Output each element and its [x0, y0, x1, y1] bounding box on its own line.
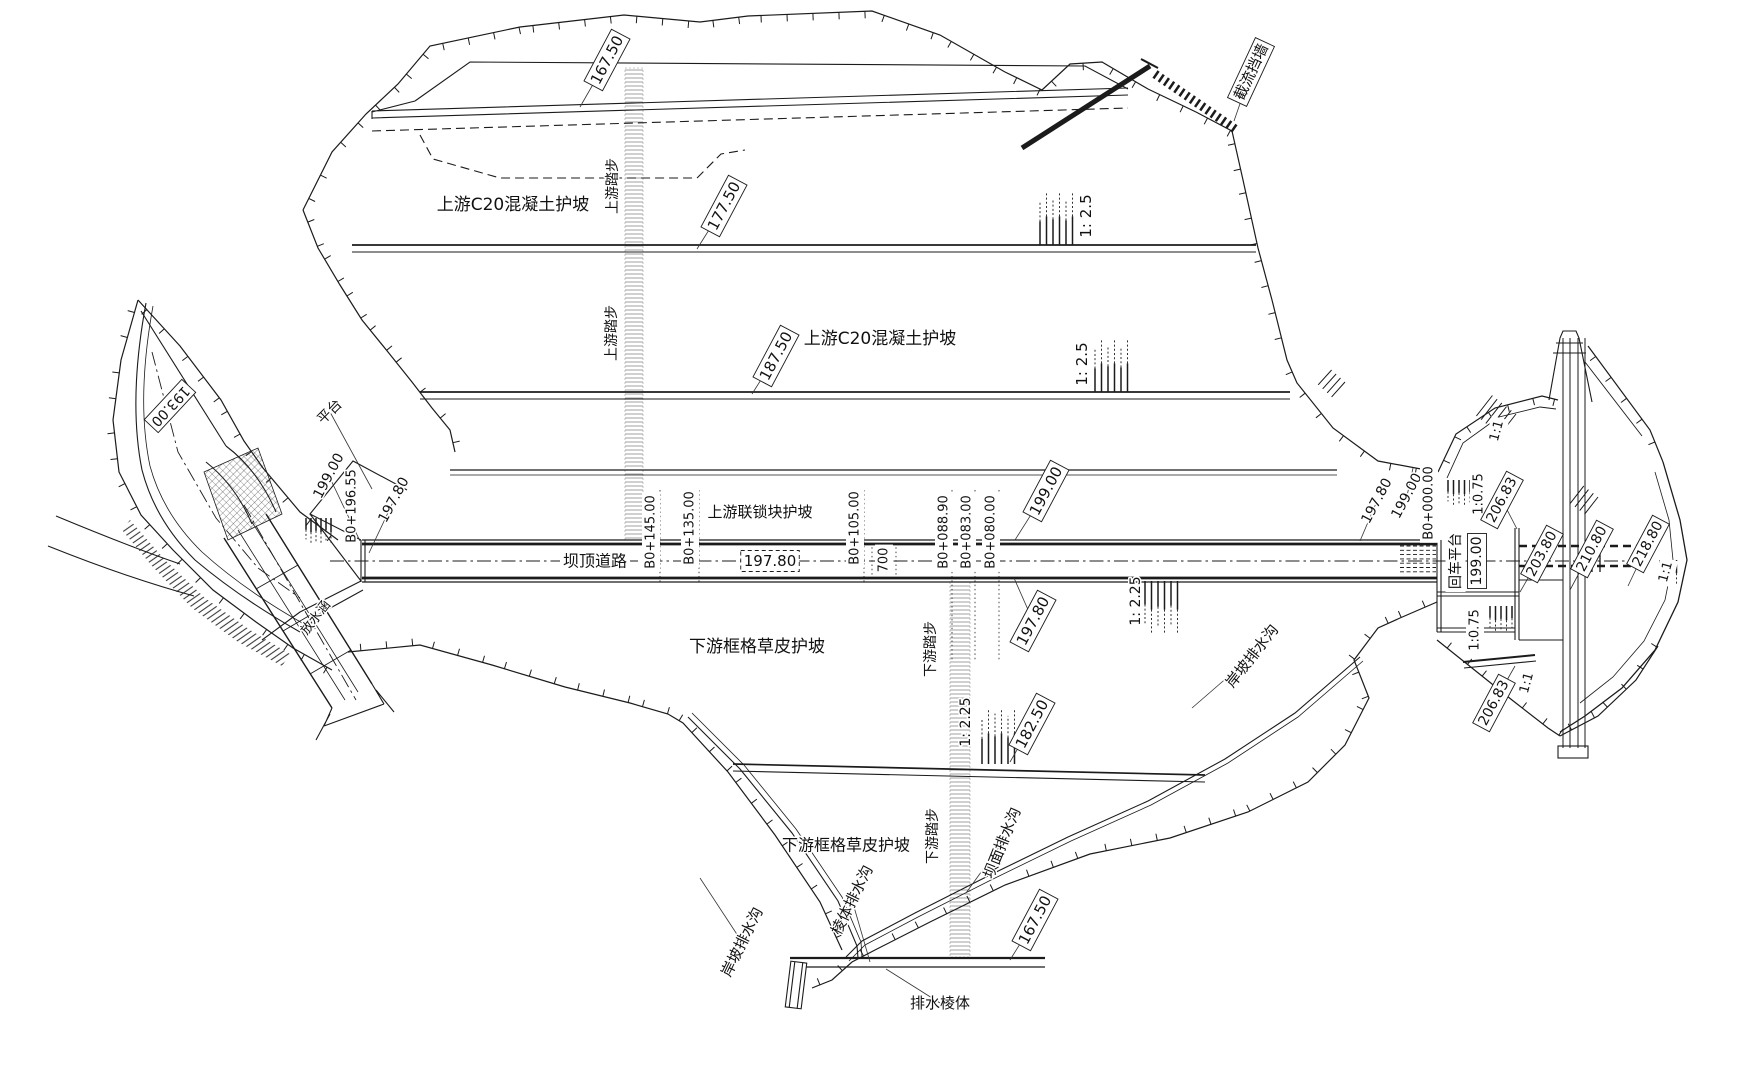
elev-182-50: 182.50	[1009, 693, 1055, 762]
note-turnaround-platform-text: 回车平台	[1447, 533, 1464, 589]
station-b0-105-00: B0+105.00	[846, 488, 864, 568]
note-downstream-grid-slope-b-text: 下游框格草皮护坡	[782, 836, 910, 855]
boundary-bottom-right	[812, 602, 1437, 988]
slope-1-2-5-a: 1: 2.5	[1077, 194, 1095, 237]
note-upstream-c20-slope-a-text: 上游C20混凝土护坡	[437, 195, 590, 215]
tower-conduit	[1563, 338, 1585, 748]
note-drain-prism: 排水棱体	[886, 969, 970, 1012]
note-crest-road: 坝顶道路	[560, 550, 630, 572]
elev-193-00-text: 193.00	[147, 383, 192, 430]
station-b0-000-00: B0+000.00	[1420, 463, 1438, 543]
station-b0-080-00-text: B0+080.00	[984, 495, 999, 569]
annotations: 167.50上游C20混凝土护坡上游踏步177.50上游踏步187.50上游C2…	[144, 29, 1678, 1012]
culvert-inner	[238, 522, 358, 700]
slope-1-0-75-b: 1:0.75	[1466, 606, 1484, 654]
station-b0-145-00-text: B0+145.00	[644, 495, 659, 569]
note-downstream-steps-b-text: 下游踏步	[925, 808, 941, 864]
right-berm-thick	[1463, 655, 1535, 662]
station-b0-145-00: B0+145.00	[642, 492, 660, 572]
note-upstream-steps-a: 上游踏步	[605, 158, 621, 214]
elev-167-50-upstream: 167.50	[580, 29, 630, 107]
hash-1-2-5-a-dash	[1040, 193, 1073, 222]
station-b0-083-00: B0+083.00	[958, 492, 976, 572]
hash-1-2-25-a	[1145, 581, 1178, 610]
note-prism-drain: 棱体排水沟	[827, 862, 876, 962]
elev-193-00: 193.00	[144, 379, 195, 432]
elev-199-00-right-text: 199.00	[1388, 471, 1425, 522]
station-b0-088-90: B0+088.90	[935, 492, 953, 572]
elev-206-83-bottom: 206.83	[1473, 666, 1516, 732]
elev-197-80-left-text: 197.80	[375, 475, 412, 526]
bank-drain-right-line	[846, 657, 1360, 957]
slope-1-2-5-a-text: 1: 2.5	[1077, 194, 1095, 237]
right-bulge-inner	[1580, 472, 1673, 703]
station-b0-135-00-text: B0+135.00	[683, 491, 698, 565]
elev-210-80: 210.80	[1570, 520, 1613, 590]
elev-167-50-downstream: 167.50	[1010, 889, 1058, 960]
note-upstream-steps-b: 上游踏步	[604, 305, 620, 361]
note-prism-drain-text: 棱体排水沟	[827, 862, 876, 937]
elev-197-80-crest-text: 197.80	[744, 552, 797, 570]
closure-wall-band	[1155, 74, 1238, 131]
note-bank-drain-right-text: 岸坡排水沟	[1222, 621, 1282, 691]
right-berm-thin	[1464, 661, 1536, 668]
note-dam-face-drain: 坝面排水沟	[966, 805, 1024, 893]
boundary-top-right	[303, 11, 1437, 472]
slope-1-0-75-a-text: 1:0.75	[1472, 473, 1487, 515]
dam-plan-drawing: 167.50上游C20混凝土护坡上游踏步177.50上游踏步187.50上游C2…	[0, 0, 1741, 1079]
slope-1-2-25-b-text: 1: 2.25	[958, 697, 974, 746]
slope-1-1-b: 1:1	[1654, 557, 1678, 588]
station-b0-105-00-text: B0+105.00	[848, 491, 863, 565]
station-b0-088-90-text: B0+088.90	[937, 495, 952, 569]
dim-700: 700	[875, 545, 893, 576]
right-tri-inner	[1585, 362, 1642, 436]
slope-1-2-5-b: 1: 2.5	[1073, 342, 1091, 385]
upstream-dashed-platform	[420, 135, 745, 178]
elev-203-80: 203.80	[1520, 525, 1563, 592]
elev-177-50: 177.50	[697, 175, 747, 249]
note-crest-road-text: 坝顶道路	[563, 552, 627, 571]
slope-1-2-25-a-text: 1: 2.25	[1128, 576, 1144, 625]
note-closure-wall: 截流挡墙	[1228, 38, 1275, 121]
slope-1-2-25-b: 1: 2.25	[958, 697, 974, 746]
station-b0-000-00-text: B0+000.00	[1422, 466, 1437, 540]
road-end-hatch	[1400, 546, 1436, 572]
slope-1-1-c: 1:1	[1515, 668, 1539, 699]
elev-199-00-crest: 199.00	[1015, 460, 1069, 540]
elev-187-50: 187.50	[752, 325, 799, 394]
note-downstream-grid-slope-a-text: 下游框格草皮护坡	[689, 637, 825, 657]
hash-1-2-25-b-dash	[982, 708, 1015, 739]
station-b0-196-55: B0+196.55	[345, 469, 360, 543]
note-downstream-steps-a: 下游踏步	[923, 621, 939, 677]
note-upstream-c20-slope-a: 上游C20混凝土护坡	[437, 195, 590, 215]
elev-197-80-left: 197.80	[369, 475, 413, 553]
upstream-platform-outline	[415, 62, 1128, 101]
dim-700-text: 700	[877, 548, 892, 573]
station-b0-083-00-text: B0+083.00	[960, 495, 975, 569]
culvert-intake-hatch	[204, 448, 282, 540]
elev-197-80-crest: 197.80	[741, 551, 800, 572]
slope-1-2-25-a: 1: 2.25	[1128, 576, 1144, 625]
note-downstream-steps-b: 下游踏步	[925, 808, 941, 864]
note-upstream-interlock-slope-text: 上游联锁块护坡	[707, 503, 812, 521]
station-b0-080-00: B0+080.00	[982, 492, 1000, 572]
note-upstream-interlock-slope: 上游联锁块护坡	[704, 502, 815, 523]
note-upstream-c20-slope-b-text: 上游C20混凝土护坡	[804, 329, 957, 349]
elev-197-80-right-text: 197.80	[1358, 476, 1395, 527]
note-upstream-steps-b-text: 上游踏步	[604, 305, 620, 361]
note-upstream-c20-slope-b: 上游C20混凝土护坡	[804, 329, 957, 349]
elev-197-80-right: 197.80	[1358, 476, 1395, 541]
hash-1-2-25-a-dash	[1145, 604, 1178, 633]
upstream-dashed-line	[372, 108, 1128, 131]
note-upstream-steps-a-text: 上游踏步	[605, 158, 621, 214]
note-drain-prism-text: 排水棱体	[910, 994, 970, 1012]
station-b0-196-55-text: B0+196.55	[345, 469, 360, 543]
elev-199-00-left-text: 199.00	[310, 451, 347, 502]
hash-1-2-5-b	[1095, 363, 1128, 392]
slope-1-0-75-b-text: 1:0.75	[1468, 609, 1483, 651]
upstream-stair-strip	[625, 68, 643, 540]
station-b0-135-00: B0+135.00	[681, 488, 699, 568]
hash-right-a-dash	[1448, 492, 1470, 506]
bottom-outlet-stub	[785, 961, 806, 1009]
note-bank-drain-right: 岸坡排水沟	[1192, 621, 1282, 708]
hash-1-2-5-b-dash	[1095, 340, 1128, 369]
boundary-bottom-left	[348, 645, 842, 950]
culvert-outlet	[316, 684, 394, 740]
hash-1-2-25-b	[982, 733, 1015, 764]
ahash-right-mid	[1570, 486, 1598, 514]
boundary-bottom-right-ticks	[817, 601, 1425, 985]
slope-1-2-5-b-text: 1: 2.5	[1073, 342, 1091, 385]
culvert-axis	[244, 505, 356, 700]
note-platform-text: 平台	[314, 396, 345, 427]
elev-199-00-platform: 199.00	[1468, 534, 1487, 589]
note-downstream-steps-a-text: 下游踏步	[923, 621, 939, 677]
elev-199-00-platform-text: 199.00	[1469, 537, 1485, 586]
ahash-upper	[1318, 370, 1345, 397]
note-downstream-grid-slope-a: 下游框格草皮护坡	[689, 637, 825, 657]
elev-197-80-downstream: 197.80	[1010, 578, 1056, 652]
note-downstream-grid-slope-b: 下游框格草皮护坡	[782, 836, 910, 855]
upstream-band	[372, 88, 1128, 119]
note-turnaround-platform: 回车平台	[1446, 530, 1466, 592]
hash-right-a	[1448, 480, 1470, 494]
hash-1-2-5-a	[1040, 216, 1073, 245]
hash-right-b-dash	[1490, 618, 1512, 632]
note-bank-drain-left: 岸坡排水沟	[700, 878, 767, 980]
boundary-bottom-left-ticks	[360, 639, 842, 938]
right-tri-edge	[1588, 346, 1663, 462]
right-lower-wing-b-ticks	[1568, 644, 1657, 730]
hash-right-b	[1490, 606, 1512, 620]
elev-199-00-right: 199.00	[1388, 468, 1425, 521]
right-tri-edge-ticks	[1590, 357, 1655, 445]
